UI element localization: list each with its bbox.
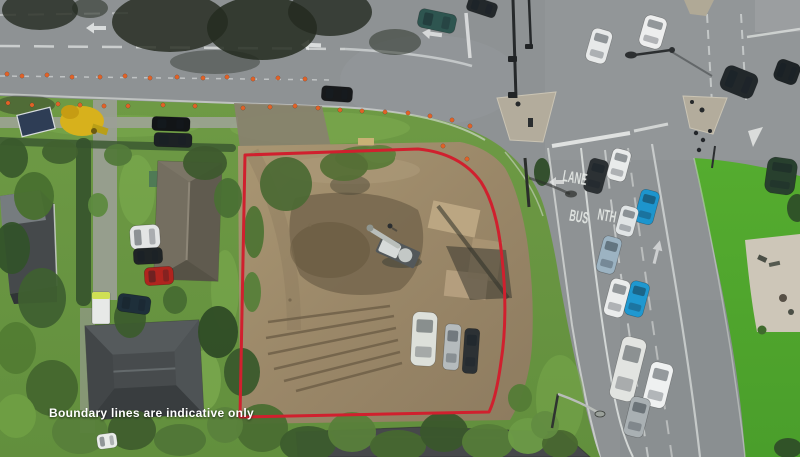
traffic-cone bbox=[406, 111, 410, 115]
road-text-lane: LANE bbox=[561, 166, 589, 189]
road-text-bus: BUS bbox=[568, 206, 590, 228]
traffic-cone bbox=[465, 157, 469, 161]
traffic-cone bbox=[468, 124, 472, 128]
traffic-cone bbox=[30, 103, 34, 107]
tree-canopy bbox=[104, 144, 132, 166]
tree-shadow bbox=[369, 29, 421, 55]
tree-canopy bbox=[508, 384, 532, 412]
pedestrian bbox=[697, 148, 701, 152]
traffic-cone bbox=[276, 76, 280, 80]
vehicle bbox=[96, 432, 118, 450]
tree-canopy bbox=[214, 178, 242, 218]
traffic-cone bbox=[78, 103, 82, 107]
traffic-cone bbox=[5, 72, 9, 76]
worker bbox=[388, 224, 393, 229]
machinery-part bbox=[91, 128, 97, 134]
signal-pole-base bbox=[516, 102, 521, 107]
tree-canopy bbox=[14, 172, 54, 220]
tree-canopy bbox=[18, 268, 66, 328]
traffic-cone bbox=[428, 114, 432, 118]
excavated-patch bbox=[290, 222, 370, 278]
tree-canopy bbox=[320, 151, 368, 181]
pedestrian bbox=[701, 138, 705, 142]
traffic-cone bbox=[201, 76, 205, 80]
rubble bbox=[288, 298, 291, 301]
road-text-nth: NTH bbox=[596, 205, 617, 226]
tree-canopy bbox=[154, 424, 206, 456]
traffic-cone bbox=[123, 74, 127, 78]
rubble bbox=[308, 223, 311, 226]
boundary-disclaimer-text: Boundary lines are indicative only bbox=[49, 406, 254, 420]
traffic-light-head bbox=[508, 56, 517, 62]
rock-object bbox=[779, 294, 787, 302]
traffic-cone bbox=[316, 106, 320, 110]
traffic-cone bbox=[175, 75, 179, 79]
vehicle bbox=[133, 247, 163, 264]
traffic-cone bbox=[360, 109, 364, 113]
traffic-cone bbox=[161, 103, 165, 107]
signal-pole-base bbox=[700, 108, 705, 113]
traffic-cone bbox=[441, 144, 445, 148]
tree-canopy bbox=[364, 145, 396, 163]
vehicle bbox=[144, 266, 174, 286]
vehicle bbox=[442, 323, 461, 370]
tree-canopy bbox=[163, 286, 187, 314]
traffic-cone bbox=[98, 75, 102, 79]
tree-shadow bbox=[170, 50, 260, 74]
tree-canopy bbox=[243, 272, 261, 312]
vehicle bbox=[764, 156, 799, 196]
traffic-cone bbox=[102, 104, 106, 108]
traffic-cone bbox=[225, 75, 229, 79]
traffic-cone bbox=[383, 110, 387, 114]
excavator-bucket bbox=[367, 225, 374, 232]
traffic-cone bbox=[148, 76, 152, 80]
pedestrian bbox=[694, 131, 698, 135]
tree-canopy bbox=[328, 412, 376, 452]
traffic-cone bbox=[303, 77, 307, 81]
portable-toilet bbox=[92, 292, 110, 324]
tree-canopy bbox=[244, 206, 264, 258]
aerial-scene: LANE BUS NTH bbox=[0, 0, 800, 457]
traffic-cone bbox=[293, 104, 297, 108]
vehicle bbox=[462, 328, 480, 374]
tree-canopy bbox=[183, 146, 227, 180]
tree-canopy bbox=[88, 193, 108, 217]
shrub bbox=[758, 326, 767, 335]
traffic-cone bbox=[241, 106, 245, 110]
lamp-shadow-head bbox=[565, 191, 577, 198]
traffic-cone bbox=[20, 74, 24, 78]
streetlight-head bbox=[625, 52, 637, 59]
lawn-patch bbox=[119, 155, 155, 225]
vehicle bbox=[152, 116, 190, 131]
streetlight-head bbox=[595, 411, 605, 417]
tree-canopy bbox=[198, 306, 238, 358]
traffic-cone bbox=[338, 108, 342, 112]
traffic-cone bbox=[450, 118, 454, 122]
vehicle bbox=[410, 311, 438, 366]
traffic-cone bbox=[268, 105, 272, 109]
equipment-item bbox=[358, 138, 374, 145]
footpath-corner bbox=[755, 0, 800, 32]
signal-box bbox=[528, 118, 533, 127]
aerial-listing-photo: LANE BUS NTH Boundary lines are indicati… bbox=[0, 0, 800, 457]
traffic-cone bbox=[70, 75, 74, 79]
pedestrian bbox=[708, 129, 712, 133]
traffic-cone bbox=[126, 104, 130, 108]
traffic-light-head bbox=[525, 44, 533, 49]
house-bottom-left bbox=[85, 320, 204, 420]
tree-canopy bbox=[42, 140, 78, 164]
traffic-light-head bbox=[508, 92, 517, 98]
signal-pole-base bbox=[690, 100, 694, 104]
vehicle bbox=[129, 224, 161, 250]
rock-object bbox=[788, 309, 794, 315]
traffic-cone bbox=[251, 77, 255, 81]
traffic-cone bbox=[56, 102, 60, 106]
traffic-cone bbox=[6, 101, 10, 105]
traffic-cone bbox=[193, 104, 197, 108]
hedge-strip bbox=[76, 138, 91, 306]
yellow-machinery bbox=[61, 105, 79, 119]
vehicle bbox=[154, 132, 192, 147]
tree-canopy bbox=[260, 157, 312, 211]
tree-canopy bbox=[420, 412, 468, 452]
traffic-cone bbox=[45, 73, 49, 77]
vehicle bbox=[321, 85, 353, 102]
